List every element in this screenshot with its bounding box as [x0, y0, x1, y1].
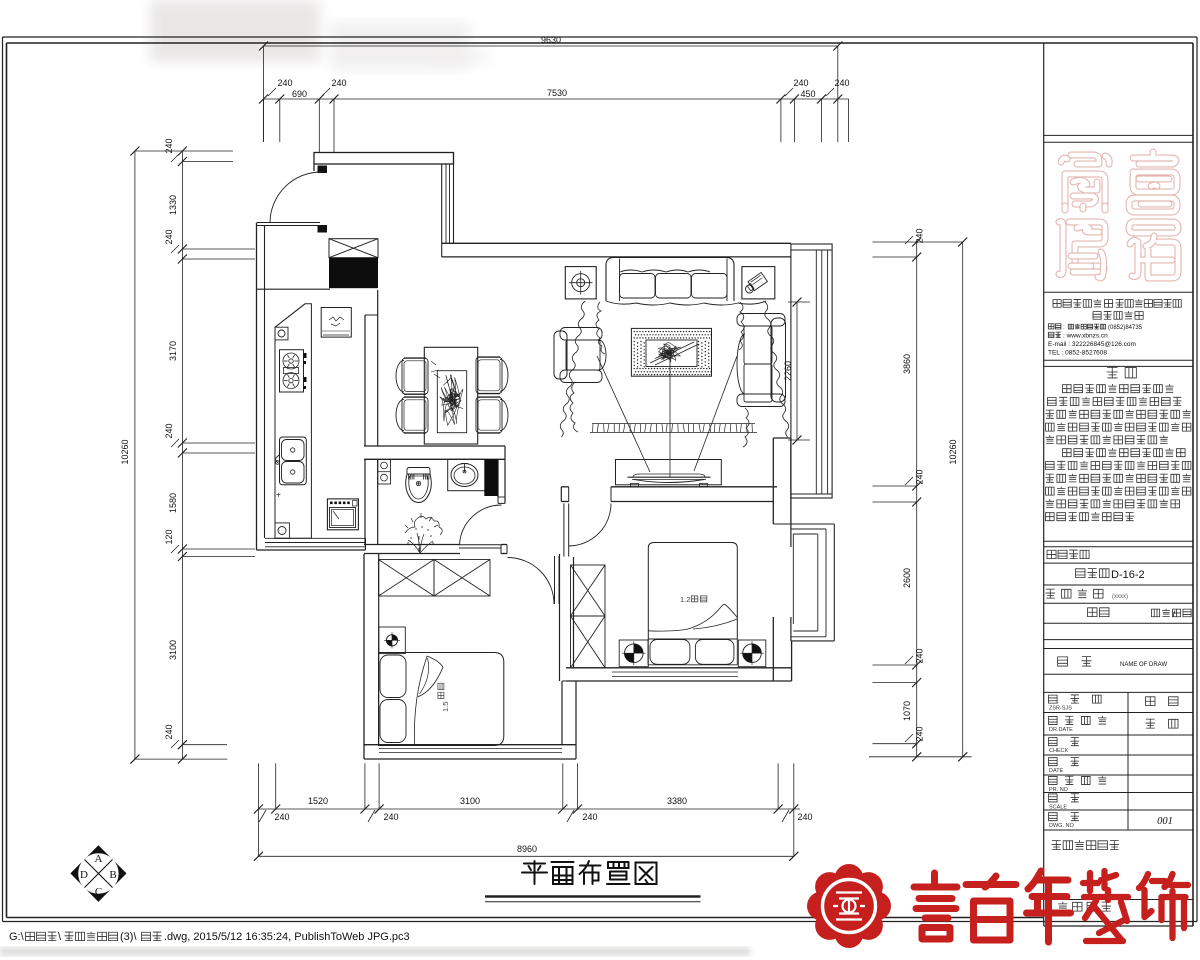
svg-text:690: 690 — [292, 89, 307, 99]
svg-text:ZSR-SJS: ZSR-SJS — [1049, 705, 1072, 711]
svg-text:240: 240 — [834, 78, 849, 88]
svg-text:(0852)84735: (0852)84735 — [1108, 325, 1143, 331]
svg-text:240: 240 — [582, 812, 597, 822]
svg-text:240: 240 — [277, 78, 292, 88]
svg-text:3100: 3100 — [460, 796, 480, 806]
svg-text:240: 240 — [164, 423, 174, 438]
svg-text:/: / — [1173, 609, 1176, 620]
svg-text:2600: 2600 — [902, 568, 912, 588]
svg-text:PR. NO: PR. NO — [1049, 787, 1069, 793]
svg-text:(xxxx): (xxxx) — [1112, 594, 1128, 600]
svg-text:240: 240 — [797, 812, 812, 822]
svg-text:(3)\: (3)\ — [120, 931, 137, 943]
svg-text:240: 240 — [383, 812, 398, 822]
svg-text:450: 450 — [800, 89, 815, 99]
svg-text:B: B — [109, 869, 116, 881]
svg-text:1520: 1520 — [308, 796, 328, 806]
svg-text:240: 240 — [915, 469, 925, 484]
svg-text:120: 120 — [164, 529, 174, 544]
svg-text:240: 240 — [915, 726, 925, 741]
svg-text:2260: 2260 — [783, 361, 793, 381]
svg-text::: : — [1063, 324, 1065, 331]
svg-text:1.5: 1.5 — [441, 702, 450, 712]
svg-text:240: 240 — [331, 78, 346, 88]
svg-text:G:\: G:\ — [9, 931, 25, 943]
svg-text:3100: 3100 — [168, 640, 178, 660]
svg-text:10260: 10260 — [120, 439, 130, 464]
svg-text:240: 240 — [164, 138, 174, 153]
svg-text:3380: 3380 — [667, 796, 687, 806]
svg-text:CHECK: CHECK — [1049, 748, 1069, 754]
svg-text:C: C — [95, 886, 102, 898]
svg-text:240: 240 — [915, 648, 925, 663]
svg-text:E-mail : 322226845@126.com: E-mail : 322226845@126.com — [1048, 341, 1136, 348]
svg-text:SCALE: SCALE — [1049, 804, 1067, 810]
svg-text:.dwg, 2015/5/12 16:35:24, Publ: .dwg, 2015/5/12 16:35:24, PublishToWeb J… — [164, 931, 410, 943]
svg-text:9630: 9630 — [541, 35, 561, 45]
svg-text:1.2: 1.2 — [680, 595, 690, 604]
svg-text:240: 240 — [274, 812, 289, 822]
svg-text:A: A — [95, 853, 103, 865]
svg-text:3170: 3170 — [168, 341, 178, 361]
svg-text:D-16-2: D-16-2 — [1111, 569, 1145, 581]
svg-text:1070: 1070 — [902, 701, 912, 721]
svg-text:DWG. NO: DWG. NO — [1049, 823, 1074, 829]
svg-text:8960: 8960 — [517, 844, 537, 854]
svg-text:DATE: DATE — [1049, 768, 1064, 774]
svg-text:DR.DATE: DR.DATE — [1049, 727, 1073, 733]
svg-text:1330: 1330 — [168, 195, 178, 215]
svg-text:240: 240 — [164, 229, 174, 244]
svg-text:001: 001 — [1157, 816, 1173, 827]
svg-text:3860: 3860 — [902, 354, 912, 374]
svg-text:240: 240 — [793, 78, 808, 88]
svg-text:: www.xbnzs.cn: : www.xbnzs.cn — [1063, 333, 1108, 340]
svg-text:TEL : 0852-8527608: TEL : 0852-8527608 — [1048, 350, 1107, 357]
svg-text:NAME OF DRAW: NAME OF DRAW — [1120, 662, 1167, 668]
svg-text:1580: 1580 — [168, 493, 178, 513]
svg-text:240: 240 — [164, 724, 174, 739]
svg-text:10260: 10260 — [948, 439, 958, 464]
svg-text:7530: 7530 — [547, 88, 567, 98]
svg-text:240: 240 — [915, 228, 925, 243]
svg-text:D: D — [80, 869, 88, 881]
